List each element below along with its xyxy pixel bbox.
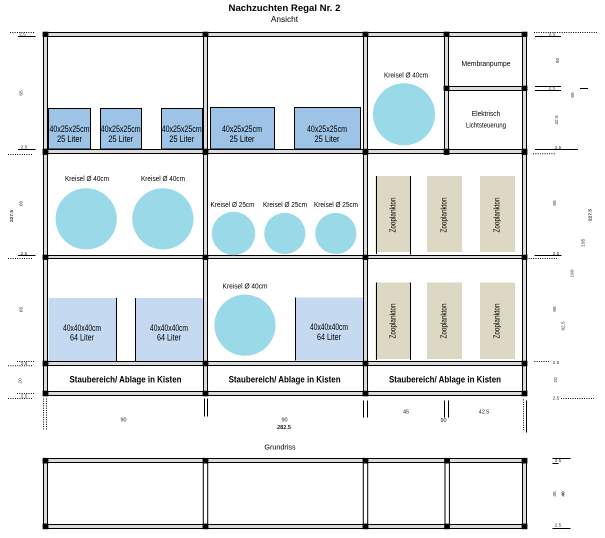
svg-text:65: 65	[19, 90, 25, 96]
svg-text:Elektrisch: Elektrisch	[472, 109, 501, 118]
svg-text:227.5: 227.5	[588, 209, 594, 221]
svg-text:32.5: 32.5	[554, 115, 560, 125]
svg-text:Grundriss: Grundriss	[264, 443, 296, 452]
svg-text:92.5: 92.5	[561, 321, 567, 331]
svg-text:42.5: 42.5	[479, 409, 490, 415]
svg-text:2.5: 2.5	[553, 396, 560, 402]
svg-text:20: 20	[18, 378, 24, 384]
svg-text:90: 90	[555, 58, 561, 64]
svg-text:45: 45	[403, 409, 409, 415]
svg-text:90: 90	[440, 418, 446, 424]
svg-text:Ansicht: Ansicht	[271, 14, 299, 24]
svg-text:Zooplankton: Zooplankton	[493, 304, 502, 339]
svg-text:Staubereich/ Ablage in Kisten: Staubereich/ Ablage in Kisten	[389, 375, 501, 385]
svg-text:2.5: 2.5	[21, 145, 28, 151]
svg-text:64 Liter: 64 Liter	[70, 333, 94, 343]
svg-text:90: 90	[120, 418, 126, 424]
svg-text:25 Liter: 25 Liter	[169, 134, 194, 144]
svg-text:195: 195	[581, 238, 587, 246]
svg-text:65: 65	[19, 201, 25, 207]
svg-text:Kreisel Ø 40cm: Kreisel Ø 40cm	[384, 70, 428, 79]
svg-text:Staubereich/ Ablage in Kisten: Staubereich/ Ablage in Kisten	[70, 375, 182, 385]
svg-text:2.5: 2.5	[555, 458, 562, 464]
svg-text:25 Liter: 25 Liter	[315, 134, 340, 144]
svg-text:40x25x25cm: 40x25x25cm	[307, 124, 347, 134]
svg-text:Kreisel Ø 40cm: Kreisel Ø 40cm	[141, 174, 185, 183]
svg-text:Nachzuchten Regal Nr. 2: Nachzuchten Regal Nr. 2	[229, 3, 341, 14]
svg-text:Zooplankton: Zooplankton	[389, 198, 398, 233]
svg-text:90: 90	[281, 418, 287, 424]
svg-text:65: 65	[552, 306, 558, 312]
svg-text:Membranpumpe: Membranpumpe	[462, 59, 511, 68]
svg-text:Zooplankton: Zooplankton	[389, 304, 398, 339]
svg-text:282.5: 282.5	[277, 425, 291, 431]
svg-text:65: 65	[19, 307, 25, 313]
svg-text:Kreisel Ø 25cm: Kreisel Ø 25cm	[314, 200, 358, 209]
svg-text:25 Liter: 25 Liter	[108, 134, 133, 144]
svg-text:35: 35	[552, 491, 558, 497]
svg-text:25 Liter: 25 Liter	[57, 134, 82, 144]
svg-text:64 Liter: 64 Liter	[157, 333, 181, 343]
svg-text:64 Liter: 64 Liter	[317, 332, 341, 342]
svg-text:65: 65	[552, 200, 558, 206]
svg-text:2.5: 2.5	[553, 360, 560, 366]
svg-text:40x40x40cm: 40x40x40cm	[310, 322, 348, 332]
svg-text:2.5: 2.5	[555, 145, 562, 151]
svg-text:Kreisel Ø 25cm: Kreisel Ø 25cm	[263, 200, 307, 209]
svg-text:Staubereich/ Ablage in Kisten: Staubereich/ Ablage in Kisten	[229, 375, 341, 385]
svg-text:2.5: 2.5	[21, 251, 28, 257]
svg-text:40x25x25cm: 40x25x25cm	[162, 124, 202, 134]
svg-text:Zooplankton: Zooplankton	[440, 198, 449, 233]
svg-text:20: 20	[553, 377, 559, 383]
svg-text:Kreisel Ø 40cm: Kreisel Ø 40cm	[223, 282, 268, 291]
svg-text:40: 40	[561, 491, 567, 497]
svg-text:2.5: 2.5	[553, 251, 560, 257]
svg-text:Zooplankton: Zooplankton	[493, 198, 502, 233]
svg-text:190: 190	[570, 269, 576, 277]
svg-text:40x40x40cm: 40x40x40cm	[150, 323, 188, 333]
svg-text:Kreisel Ø 25cm: Kreisel Ø 25cm	[211, 200, 255, 209]
svg-text:40x25x25cm: 40x25x25cm	[101, 124, 141, 134]
svg-text:2.5: 2.5	[555, 523, 562, 529]
svg-text:227.5: 227.5	[9, 210, 15, 222]
svg-text:40x25x25cm: 40x25x25cm	[222, 124, 262, 134]
svg-text:25 Liter: 25 Liter	[230, 134, 255, 144]
svg-text:40x25x25cm: 40x25x25cm	[50, 124, 90, 134]
svg-text:40x40x40cm: 40x40x40cm	[63, 323, 101, 333]
svg-text:65: 65	[570, 92, 576, 98]
svg-text:Lichtsteuerung: Lichtsteuerung	[466, 121, 506, 130]
svg-text:Zooplankton: Zooplankton	[440, 304, 449, 339]
svg-text:Kreisel Ø 40cm: Kreisel Ø 40cm	[65, 174, 109, 183]
